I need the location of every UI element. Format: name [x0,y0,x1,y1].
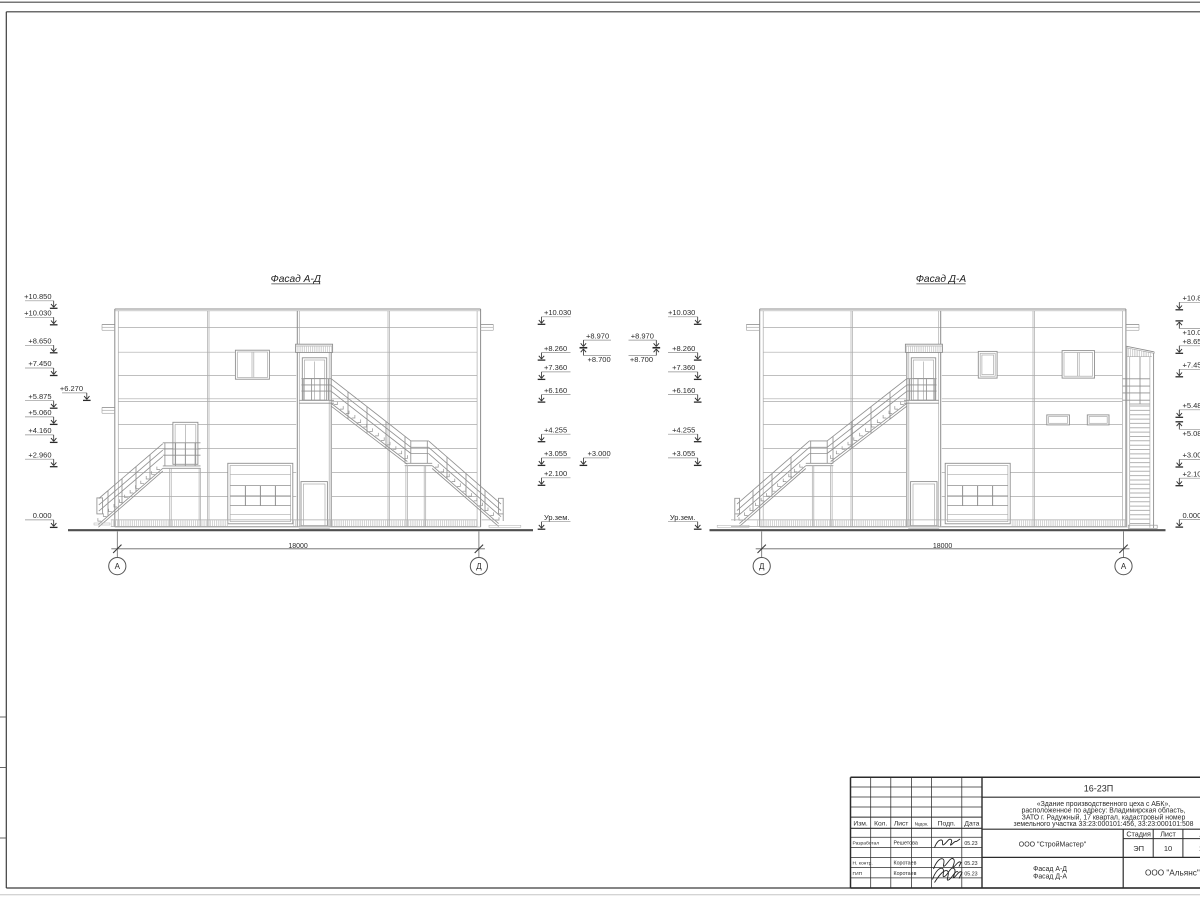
svg-text:+5.485: +5.485 [1183,401,1200,410]
svg-text:Д: Д [759,562,765,571]
svg-text:+4.255: +4.255 [544,425,567,434]
svg-text:+2.960: +2.960 [28,450,51,459]
svg-text:ГИП: ГИП [853,871,863,877]
svg-text:05.23: 05.23 [964,861,977,867]
svg-text:+3.055: +3.055 [672,449,695,458]
svg-text:+5.080: +5.080 [1183,429,1200,438]
svg-text:+3.000: +3.000 [588,449,611,458]
svg-text:Коротаев: Коротаев [894,871,917,877]
svg-text:+7.450: +7.450 [28,359,51,368]
svg-text:+6.160: +6.160 [544,386,567,395]
svg-text:+10.850: +10.850 [24,292,51,301]
svg-text:расположенное по адресу: Влади: расположенное по адресу: Владимирская об… [1022,807,1186,815]
svg-text:Лист: Лист [1160,830,1176,839]
svg-text:16-23П: 16-23П [1084,784,1114,794]
svg-text:+3.000: +3.000 [1183,451,1200,460]
svg-text:+5.060: +5.060 [28,408,51,417]
svg-text:+8.650: +8.650 [1183,337,1200,346]
svg-text:Разработал: Разработал [853,841,880,847]
svg-text:+3.055: +3.055 [544,449,567,458]
svg-text:Подп.: Подп. [938,820,956,827]
svg-text:ООО "Альянс": ООО "Альянс" [1145,868,1200,877]
svg-text:0.000: 0.000 [33,511,52,520]
svg-text:ООО "СтройМастер": ООО "СтройМастер" [1019,840,1087,848]
svg-text:Н. контр.: Н. контр. [853,861,873,867]
svg-text:05.23: 05.23 [964,871,977,877]
svg-text:Изм.: Изм. [853,820,867,827]
svg-text:земельного участка 33:23:00010: земельного участка 33:23:000101:456, 33:… [1014,821,1194,828]
svg-text:Коротаев: Коротаев [894,861,917,867]
svg-text:+10.030: +10.030 [1183,328,1200,337]
svg-text:Фасад А-Д: Фасад А-Д [271,274,321,285]
svg-text:+8.650: +8.650 [28,337,51,346]
svg-text:+8.260: +8.260 [672,344,695,353]
svg-text:+10.030: +10.030 [668,308,695,317]
svg-text:А: А [1121,562,1127,571]
svg-text:Лист: Лист [894,820,909,827]
svg-text:ЭП: ЭП [1133,844,1144,853]
svg-text:+7.360: +7.360 [544,363,567,372]
svg-text:+7.360: +7.360 [672,363,695,372]
svg-text:+10.850: +10.850 [1183,294,1200,303]
svg-text:Решетова: Решетова [894,841,918,847]
svg-text:+10.030: +10.030 [24,309,51,318]
svg-text:18000: 18000 [288,543,308,550]
svg-text:+8.970: +8.970 [586,331,609,340]
svg-text:Фасад Д-А: Фасад Д-А [1033,873,1067,880]
svg-text:Кол.: Кол. [874,820,887,827]
svg-text:+8.700: +8.700 [630,355,653,364]
svg-text:Дата: Дата [964,820,979,827]
svg-text:+5.875: +5.875 [28,392,51,401]
svg-text:+8.970: +8.970 [631,331,654,340]
svg-text:Стадия: Стадия [1126,830,1151,839]
svg-text:+2.100: +2.100 [544,469,567,478]
svg-text:Ур.зем.: Ур.зем. [670,513,695,522]
svg-text:+6.160: +6.160 [672,386,695,395]
svg-text:+4.160: +4.160 [28,426,51,435]
svg-text:18000: 18000 [933,543,953,550]
svg-text:+8.700: +8.700 [588,355,611,364]
svg-text:+6.270: +6.270 [60,384,83,393]
svg-text:+10.030: +10.030 [544,308,571,317]
svg-text:ЗАТО г. Радужный, 17 квартал,: ЗАТО г. Радужный, 17 квартал, кадастровы… [1022,813,1186,821]
svg-text:+2.100: +2.100 [1183,469,1200,478]
svg-text:+7.450: +7.450 [1183,361,1200,370]
svg-text:05.23: 05.23 [964,841,977,847]
svg-text:№док.: №док. [914,822,928,828]
svg-text:Ур.зем.: Ур.зем. [544,513,569,522]
svg-text:Фасад Д-А: Фасад Д-А [916,274,967,285]
svg-text:0.000: 0.000 [1183,511,1200,520]
svg-text:Фасад А-Д: Фасад А-Д [1033,866,1067,873]
svg-text:+4.255: +4.255 [672,425,695,434]
svg-text:А: А [115,562,121,571]
svg-text:10: 10 [1164,844,1172,853]
svg-text:Д: Д [476,562,482,571]
svg-text:+8.260: +8.260 [544,344,567,353]
